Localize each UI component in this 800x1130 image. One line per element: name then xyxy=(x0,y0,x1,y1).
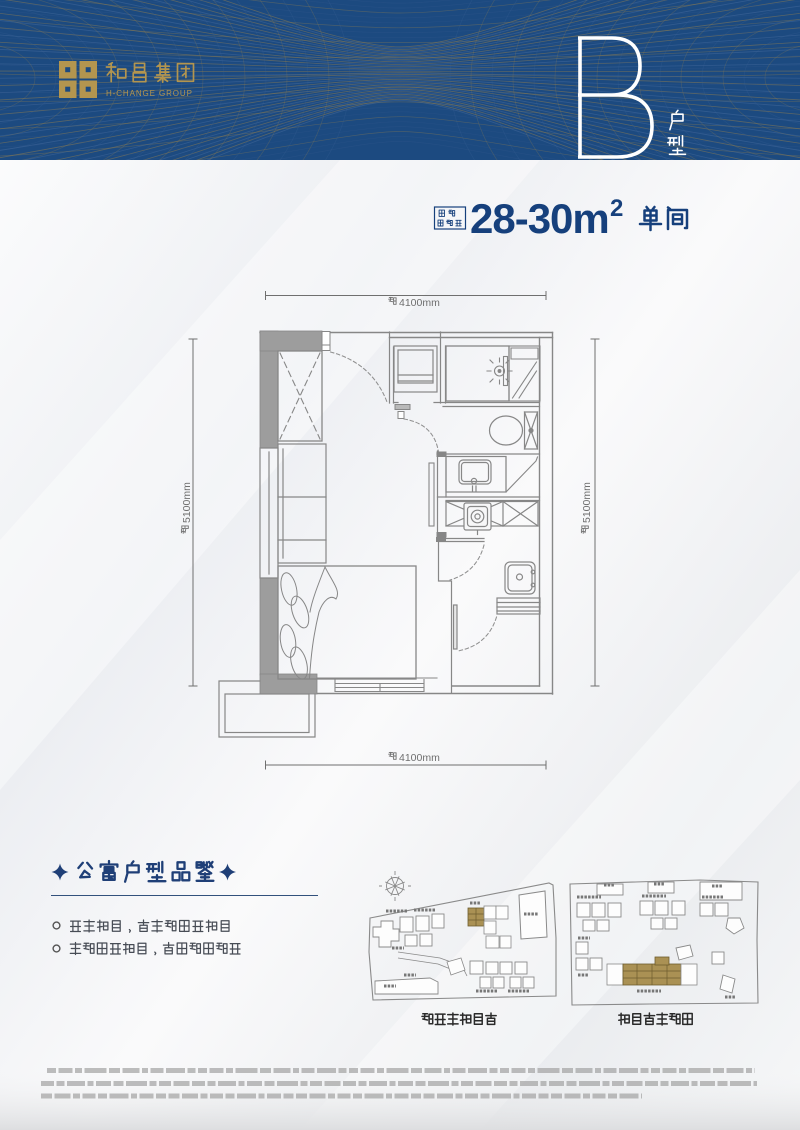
svg-text:4100mm: 4100mm xyxy=(399,752,440,764)
svg-text:4100mm: 4100mm xyxy=(399,297,440,309)
svg-text:5100mm: 5100mm xyxy=(181,482,193,523)
svg-text:28-30m: 28-30m xyxy=(470,195,609,242)
svg-text:2: 2 xyxy=(610,195,623,222)
svg-text:5100mm: 5100mm xyxy=(581,482,593,523)
